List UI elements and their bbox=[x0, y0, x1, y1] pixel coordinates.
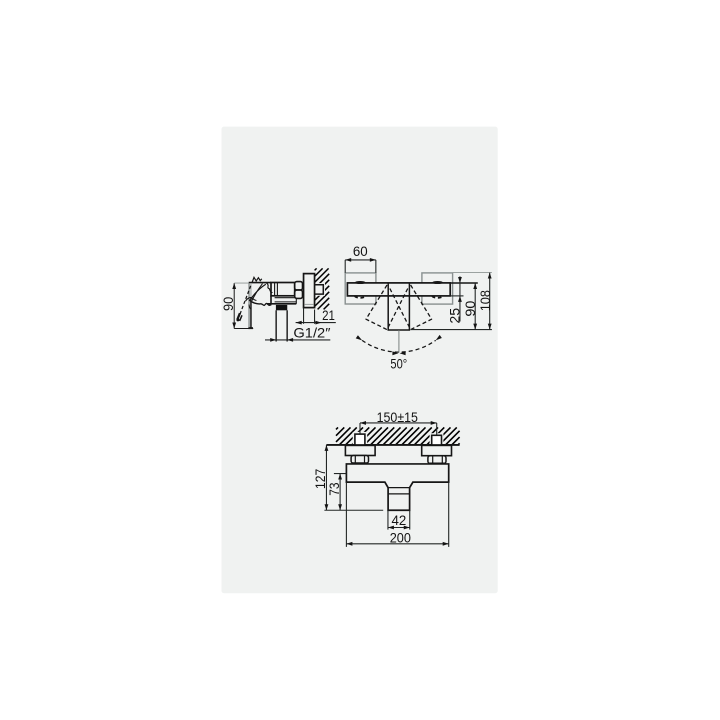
svg-text:G1/2″: G1/2″ bbox=[293, 325, 330, 341]
svg-text:90: 90 bbox=[220, 297, 236, 311]
svg-text:200: 200 bbox=[390, 529, 411, 545]
svg-text:42: 42 bbox=[392, 512, 407, 528]
svg-text:150±15: 150±15 bbox=[377, 409, 418, 425]
svg-text:60: 60 bbox=[353, 243, 368, 259]
svg-text:25: 25 bbox=[447, 308, 463, 324]
svg-text:73: 73 bbox=[326, 482, 342, 495]
svg-text:90: 90 bbox=[462, 300, 478, 316]
svg-text:21: 21 bbox=[322, 307, 335, 323]
svg-text:50°: 50° bbox=[390, 356, 407, 372]
svg-text:108: 108 bbox=[477, 290, 493, 311]
